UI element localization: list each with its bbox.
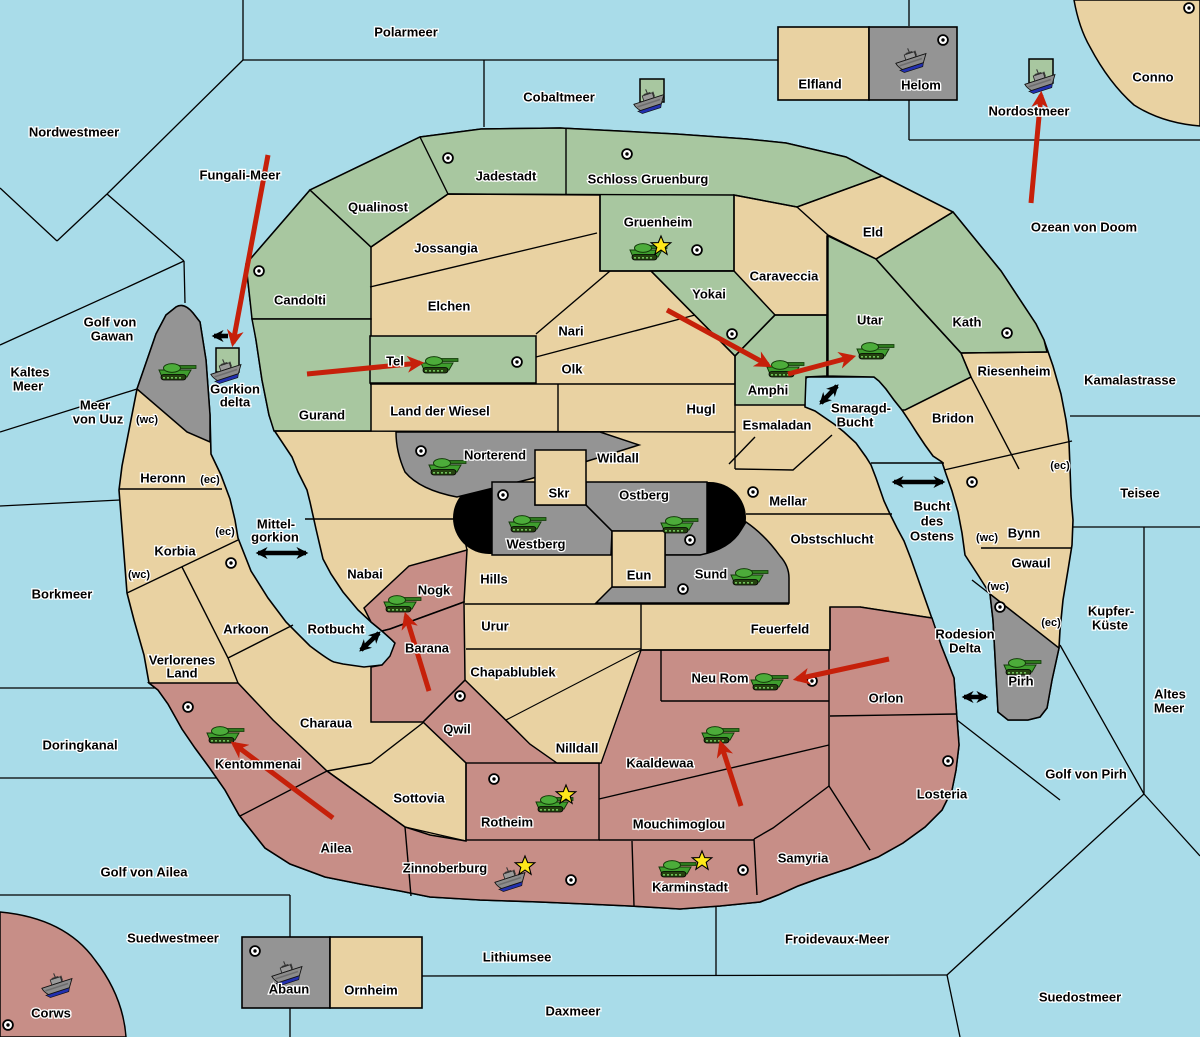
svg-text:Ailea: Ailea bbox=[320, 841, 352, 856]
svg-text:Lithiumsee: Lithiumsee bbox=[483, 950, 552, 965]
svg-text:Nari: Nari bbox=[558, 324, 583, 339]
svg-text:Cobaltmeer: Cobaltmeer bbox=[523, 90, 595, 105]
svg-text:Yokai: Yokai bbox=[692, 287, 726, 302]
svg-text:Pirh: Pirh bbox=[1008, 674, 1033, 689]
svg-text:Obstschlucht: Obstschlucht bbox=[790, 532, 874, 547]
svg-text:Meer: Meer bbox=[1154, 701, 1184, 716]
svg-text:Westberg: Westberg bbox=[507, 537, 566, 552]
svg-text:Helom: Helom bbox=[901, 78, 941, 93]
svg-text:Caraveccia: Caraveccia bbox=[750, 269, 819, 284]
svg-text:Bridon: Bridon bbox=[932, 411, 974, 426]
svg-text:Smaragd-: Smaragd- bbox=[831, 401, 891, 416]
svg-text:delta: delta bbox=[220, 395, 251, 410]
svg-text:Ostberg: Ostberg bbox=[619, 488, 669, 503]
svg-text:Losteria: Losteria bbox=[917, 787, 968, 802]
svg-text:Golf von Ailea: Golf von Ailea bbox=[101, 865, 189, 880]
svg-text:Rotheim: Rotheim bbox=[481, 815, 533, 830]
svg-text:(wc): (wc) bbox=[136, 414, 158, 426]
svg-text:Hills: Hills bbox=[480, 572, 507, 587]
svg-text:Golf von: Golf von bbox=[84, 315, 137, 330]
svg-text:gorkion: gorkion bbox=[251, 530, 299, 545]
svg-text:Bynn: Bynn bbox=[1008, 526, 1041, 541]
svg-text:Arkoon: Arkoon bbox=[223, 622, 269, 637]
svg-text:(wc): (wc) bbox=[976, 532, 998, 544]
svg-text:Meer: Meer bbox=[13, 379, 43, 394]
svg-text:Land der Wiesel: Land der Wiesel bbox=[390, 404, 490, 419]
svg-text:Urur: Urur bbox=[481, 619, 508, 634]
svg-text:(wc): (wc) bbox=[987, 581, 1009, 593]
svg-text:Teisee: Teisee bbox=[1120, 486, 1160, 501]
svg-text:Abaun: Abaun bbox=[269, 982, 310, 997]
svg-text:Skr: Skr bbox=[549, 486, 570, 501]
svg-text:Schloss Gruenburg: Schloss Gruenburg bbox=[588, 172, 709, 187]
svg-text:Conno: Conno bbox=[1132, 70, 1173, 85]
svg-text:Altes: Altes bbox=[1154, 687, 1186, 702]
svg-text:Olk: Olk bbox=[562, 362, 584, 377]
svg-text:Hugl: Hugl bbox=[687, 402, 716, 417]
svg-text:Borkmeer: Borkmeer bbox=[32, 587, 93, 602]
svg-text:Ostens: Ostens bbox=[910, 529, 954, 544]
svg-text:Korbia: Korbia bbox=[154, 544, 196, 559]
svg-text:von Uuz: von Uuz bbox=[73, 412, 124, 427]
svg-text:Kath: Kath bbox=[953, 315, 982, 330]
svg-text:Esmaladan: Esmaladan bbox=[743, 418, 812, 433]
svg-text:Gwaul: Gwaul bbox=[1011, 556, 1050, 571]
svg-text:Tel: Tel bbox=[386, 354, 404, 369]
svg-text:Gurand: Gurand bbox=[299, 408, 345, 423]
svg-text:Heronn: Heronn bbox=[140, 471, 186, 486]
svg-text:Gruenheim: Gruenheim bbox=[624, 215, 693, 230]
svg-text:Feuerfeld: Feuerfeld bbox=[751, 622, 810, 637]
svg-text:Bucht: Bucht bbox=[914, 499, 952, 514]
svg-text:Fungali-Meer: Fungali-Meer bbox=[200, 168, 281, 183]
svg-text:Nordostmeer: Nordostmeer bbox=[989, 104, 1070, 119]
svg-text:Meer: Meer bbox=[80, 398, 110, 413]
svg-text:Küste: Küste bbox=[1092, 618, 1128, 633]
svg-text:Jossangia: Jossangia bbox=[414, 241, 478, 256]
svg-text:Charaua: Charaua bbox=[300, 716, 353, 731]
svg-text:Rotbucht: Rotbucht bbox=[307, 622, 365, 637]
svg-text:Zinnoberburg: Zinnoberburg bbox=[403, 861, 488, 876]
svg-text:Barana: Barana bbox=[405, 641, 450, 656]
svg-text:(ec): (ec) bbox=[1050, 460, 1070, 472]
svg-text:des: des bbox=[921, 514, 943, 529]
svg-text:Wildall: Wildall bbox=[597, 451, 639, 466]
svg-text:Eld: Eld bbox=[863, 225, 883, 240]
svg-text:Amphi: Amphi bbox=[748, 383, 788, 398]
svg-text:Sottovia: Sottovia bbox=[393, 791, 445, 806]
svg-text:Qualinost: Qualinost bbox=[348, 200, 409, 215]
svg-text:Riesenheim: Riesenheim bbox=[978, 364, 1051, 379]
svg-text:Jadestadt: Jadestadt bbox=[476, 169, 537, 184]
svg-text:Utar: Utar bbox=[857, 313, 883, 328]
svg-text:Mouchimoglou: Mouchimoglou bbox=[633, 817, 725, 832]
svg-text:Rodesion: Rodesion bbox=[935, 627, 994, 642]
svg-text:Froidevaux-Meer: Froidevaux-Meer bbox=[785, 932, 889, 947]
svg-text:Suedwestmeer: Suedwestmeer bbox=[127, 931, 219, 946]
svg-text:Kaltes: Kaltes bbox=[10, 365, 49, 380]
svg-text:Nilldall: Nilldall bbox=[556, 741, 599, 756]
svg-text:(wc): (wc) bbox=[128, 569, 150, 581]
svg-text:Ornheim: Ornheim bbox=[344, 983, 397, 998]
svg-text:Eun: Eun bbox=[627, 568, 652, 583]
svg-text:(ec): (ec) bbox=[200, 474, 220, 486]
svg-text:Land: Land bbox=[166, 666, 197, 681]
svg-text:Nabai: Nabai bbox=[347, 567, 382, 582]
svg-text:Karminstadt: Karminstadt bbox=[652, 880, 729, 895]
svg-text:Mellar: Mellar bbox=[769, 494, 807, 509]
svg-text:Samyria: Samyria bbox=[778, 851, 829, 866]
svg-text:Kaaldewaa: Kaaldewaa bbox=[626, 756, 694, 771]
svg-text:Elfland: Elfland bbox=[798, 77, 841, 92]
svg-text:Chapablublek: Chapablublek bbox=[470, 665, 556, 680]
svg-text:(ec): (ec) bbox=[1041, 617, 1061, 629]
svg-text:Orlon: Orlon bbox=[869, 691, 904, 706]
svg-text:Kupfer-: Kupfer- bbox=[1088, 604, 1134, 619]
svg-text:Corws: Corws bbox=[31, 1006, 71, 1021]
svg-text:Sund: Sund bbox=[695, 567, 728, 582]
svg-text:Polarmeer: Polarmeer bbox=[374, 25, 438, 40]
svg-text:Kamalastrasse: Kamalastrasse bbox=[1084, 373, 1176, 388]
svg-text:Gawan: Gawan bbox=[91, 329, 134, 344]
svg-text:Golf von Pirh: Golf von Pirh bbox=[1045, 767, 1127, 782]
svg-text:Ozean von Doom: Ozean von Doom bbox=[1031, 220, 1137, 235]
svg-text:Norterend: Norterend bbox=[464, 448, 526, 463]
svg-text:Suedostmeer: Suedostmeer bbox=[1039, 990, 1121, 1005]
svg-text:Elchen: Elchen bbox=[428, 299, 471, 314]
svg-text:Candolti: Candolti bbox=[274, 293, 326, 308]
svg-text:Nordwestmeer: Nordwestmeer bbox=[29, 125, 119, 140]
svg-text:Nogk: Nogk bbox=[418, 583, 451, 598]
svg-text:Bucht: Bucht bbox=[837, 415, 875, 430]
svg-text:(ec): (ec) bbox=[215, 526, 235, 538]
svg-text:Qwil: Qwil bbox=[443, 722, 470, 737]
svg-text:Delta: Delta bbox=[949, 641, 982, 656]
svg-text:Daxmeer: Daxmeer bbox=[546, 1004, 601, 1019]
svg-text:Doringkanal: Doringkanal bbox=[42, 738, 117, 753]
svg-text:Kentommenai: Kentommenai bbox=[215, 757, 301, 772]
svg-text:Neu Rom: Neu Rom bbox=[691, 671, 748, 686]
